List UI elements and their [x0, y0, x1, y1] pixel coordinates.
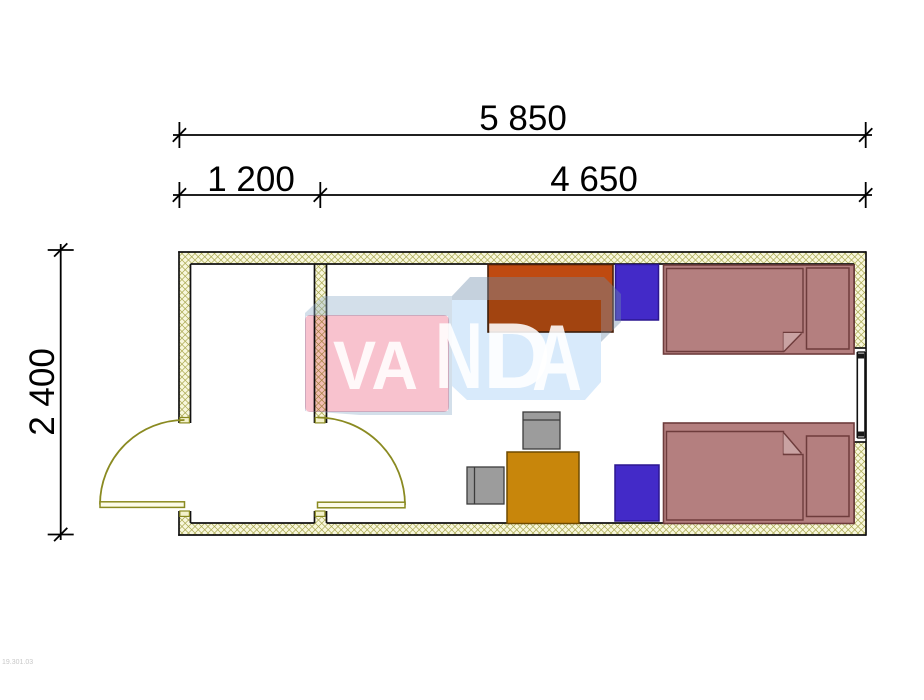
svg-text:19.301.03: 19.301.03	[2, 659, 33, 666]
svg-text:4 650: 4 650	[550, 160, 638, 199]
svg-text:1 200: 1 200	[207, 160, 295, 199]
svg-text:5 850: 5 850	[479, 99, 567, 138]
svg-text:A: A	[532, 305, 582, 410]
svg-text:VA: VA	[333, 327, 418, 404]
svg-text:2 400: 2 400	[23, 348, 62, 436]
svg-text:N: N	[435, 303, 483, 408]
